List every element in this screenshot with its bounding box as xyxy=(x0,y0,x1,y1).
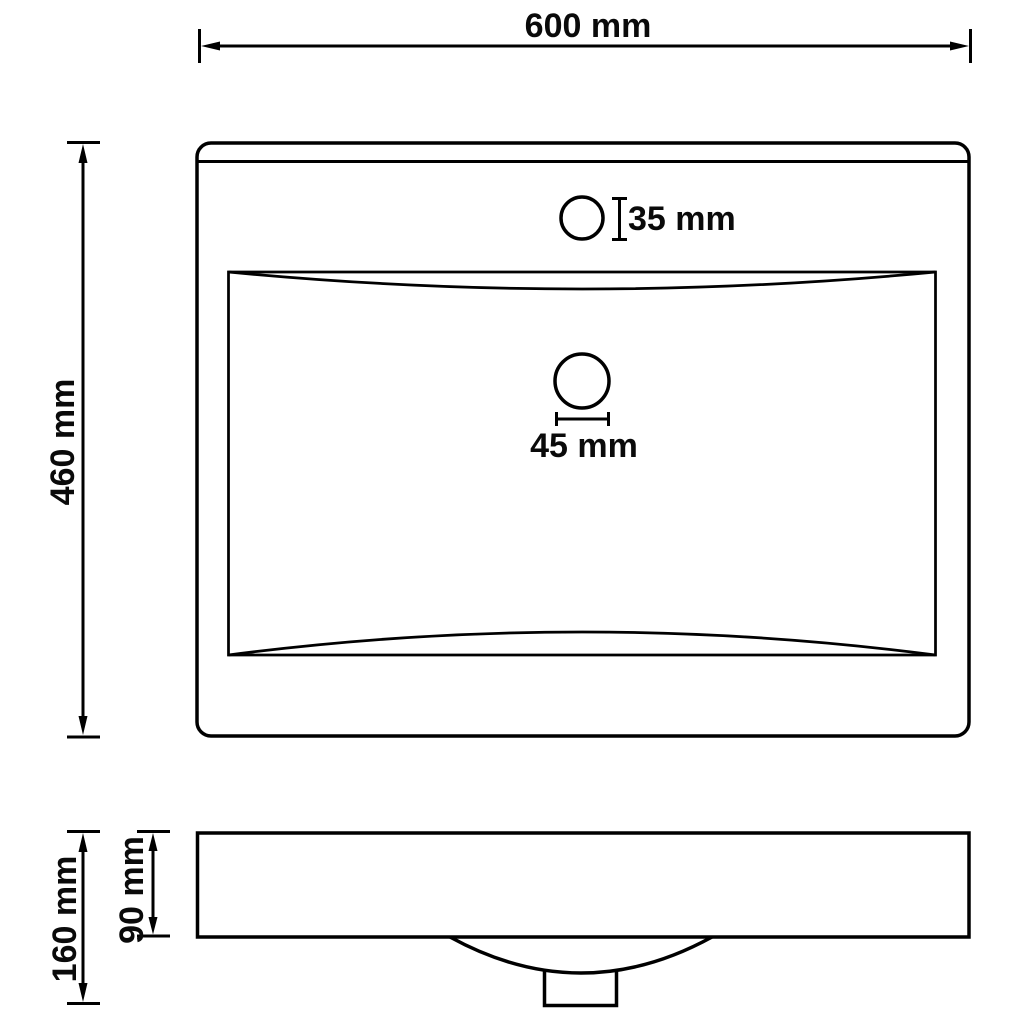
drain-pipe xyxy=(545,971,617,1006)
faucet-hole xyxy=(561,197,603,239)
technical-drawing-canvas: 600 mm 460 mm 35 mm 45 mm 160 mm 90 mm xyxy=(0,0,1024,1024)
width-dimension-label: 600 mm xyxy=(488,9,688,43)
drain-hole-dimension xyxy=(556,412,609,426)
drain-hole-dimension-label: 45 mm xyxy=(484,429,684,463)
drawing-linework xyxy=(0,0,1024,1024)
side-profile-body xyxy=(198,833,970,937)
basin-inner-bottom-curve xyxy=(229,632,936,655)
faucet-hole-dimension-label: 35 mm xyxy=(628,202,736,236)
depth-dimension-label: 460 mm xyxy=(46,379,80,506)
drain-hole xyxy=(555,354,609,408)
faucet-hole-dimension xyxy=(612,198,627,240)
side-view xyxy=(198,833,970,1006)
rim-height-dimension-label: 90 mm xyxy=(115,836,149,944)
bowl-underside-arc xyxy=(450,937,712,973)
basin-inner-top-curve xyxy=(229,272,936,289)
total-height-dimension-label: 160 mm xyxy=(48,856,82,983)
